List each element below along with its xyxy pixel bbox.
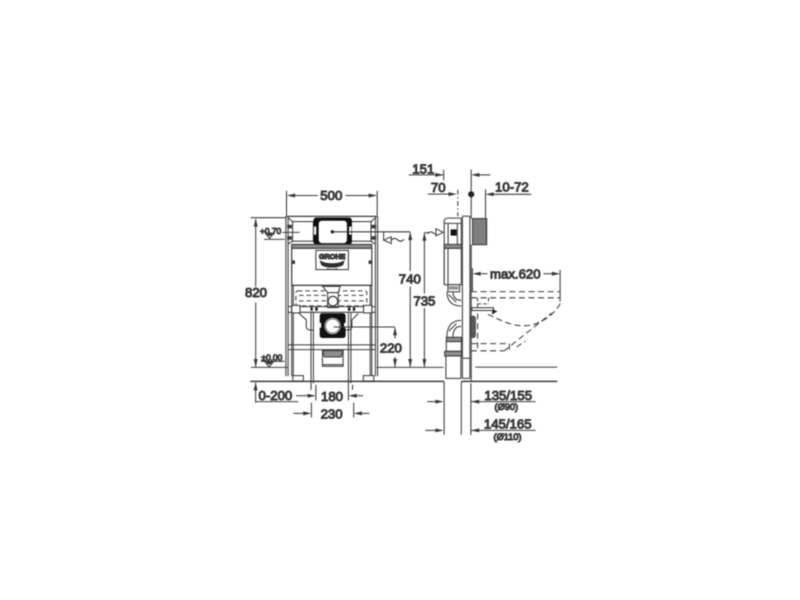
svg-text:180: 180 [321, 389, 343, 404]
svg-text:135/155: 135/155 [484, 388, 532, 403]
svg-text:(Ø90): (Ø90) [495, 402, 519, 412]
svg-text:0-200: 0-200 [259, 388, 293, 403]
svg-text:70: 70 [431, 180, 446, 195]
svg-text:145/165: 145/165 [484, 417, 532, 432]
svg-text:735: 735 [413, 294, 435, 309]
svg-text:GROHE: GROHE [319, 252, 346, 261]
svg-text:500: 500 [320, 188, 342, 203]
svg-text:(Ø110): (Ø110) [494, 432, 522, 442]
svg-text:max.620: max.620 [490, 267, 541, 282]
svg-text:230: 230 [321, 407, 343, 422]
svg-text:151: 151 [412, 161, 434, 176]
svg-text:740: 740 [399, 271, 421, 286]
svg-text:820: 820 [245, 285, 267, 300]
svg-text:220: 220 [380, 340, 402, 355]
svg-text:10-72: 10-72 [495, 180, 529, 195]
